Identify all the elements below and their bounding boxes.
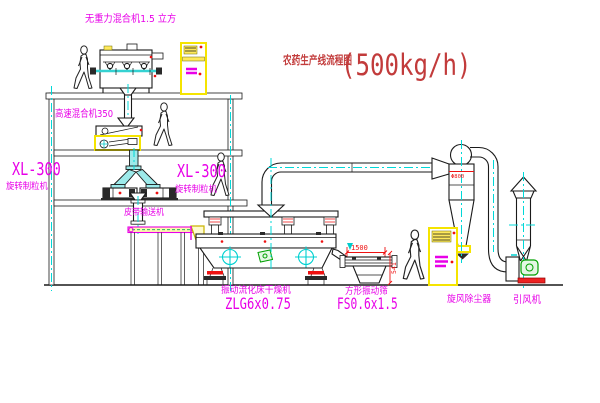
label-granulator-name-right: 旋转制粒机 <box>175 186 217 195</box>
label-granulator-model-left: XL-300 <box>12 161 61 180</box>
downcomer-duct <box>470 148 508 273</box>
label-gravity-mixer: 无重力混合机1.5 立方 <box>85 15 176 26</box>
dryer-leg-left <box>204 268 226 285</box>
label-high-speed-mixer: 高速混合机350 <box>55 110 113 121</box>
high-speed-mixer <box>95 118 142 150</box>
fluid-bed-dryer <box>196 211 349 285</box>
belt-conveyor <box>128 227 197 285</box>
vibrating-sieve <box>340 243 397 285</box>
cyclone-inlet-taper <box>432 158 449 179</box>
label-granulator-name-left: 旋转制粒机 <box>6 183 48 192</box>
control-cabinet-top <box>181 43 206 94</box>
worker-figure <box>154 103 172 146</box>
label-sieve-model: FS0.6x1.5 <box>337 296 398 313</box>
dim-cyclone-text: Φ800 <box>451 175 464 181</box>
dryer-leg-right <box>305 268 327 285</box>
control-cabinet-right <box>429 228 457 285</box>
label-fan: 引风机 <box>513 296 541 307</box>
label-dryer-model: ZLG6x0.75 <box>225 296 291 313</box>
worker-figure <box>74 46 92 89</box>
worker-figure <box>403 230 424 279</box>
cad-drawing-canvas: .k{stroke:#1a1a1a;fill:none;stroke-width… <box>0 0 600 403</box>
label-belt-conveyor: 皮带输送机 <box>124 209 164 218</box>
title-capacity: (500kg/h) <box>341 50 471 80</box>
label-granulator-model-right: XL-300 <box>177 163 226 182</box>
dim-1500-text: 1500 <box>351 245 368 252</box>
dim-541-text: 541 <box>391 262 398 274</box>
label-cyclone: 旋风除尘器 <box>447 295 491 305</box>
